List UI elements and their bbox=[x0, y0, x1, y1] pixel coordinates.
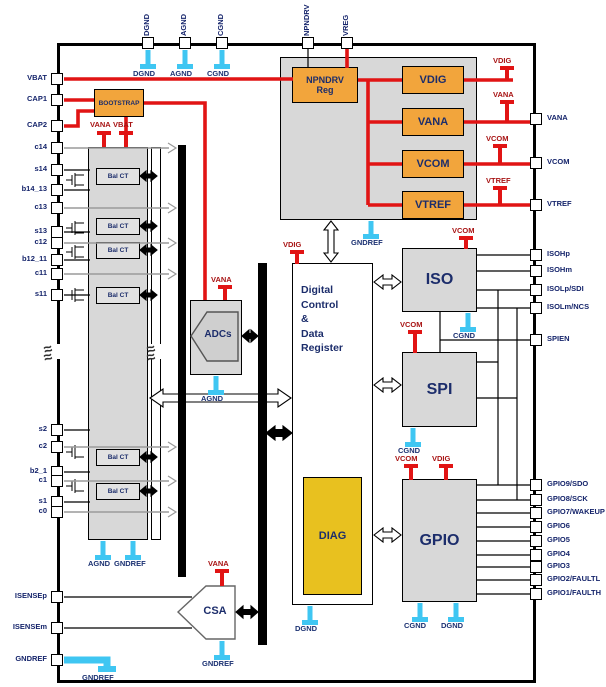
pin-label-VCOM: VCOM bbox=[547, 158, 570, 166]
supply-tap-stem bbox=[498, 146, 502, 164]
pin-label-b2_1: b2_1 bbox=[3, 467, 47, 475]
ground-label-GNDREF-13: GNDREF bbox=[82, 674, 114, 682]
pin-right-VCOM bbox=[530, 157, 542, 169]
pin-label-VANA: VANA bbox=[547, 114, 568, 122]
ground-label-CGND-2: CGND bbox=[207, 70, 229, 78]
csa-bus-arrow bbox=[236, 606, 258, 618]
supply-tap-stem bbox=[413, 332, 417, 353]
supply-tap-stem bbox=[444, 466, 448, 480]
ground-icon-bar bbox=[98, 666, 116, 672]
pin-label-GPIO5: GPIO5 bbox=[547, 536, 570, 544]
pin-label-c2: c2 bbox=[3, 442, 47, 450]
ground-label-AGND-1: AGND bbox=[170, 70, 192, 78]
supply-tap-stem bbox=[505, 68, 509, 80]
pin-right-GPIO5 bbox=[530, 535, 542, 547]
pin-label-c1: c1 bbox=[3, 476, 47, 484]
supply-label-VCOM-5: VCOM bbox=[400, 321, 423, 329]
pin-label-c13: c13 bbox=[3, 203, 47, 211]
pin-label-GPIO2/FAULTL: GPIO2/FAULTL bbox=[547, 575, 600, 583]
pin-left-s14 bbox=[51, 164, 63, 176]
cell-sense-wire-end bbox=[168, 143, 176, 153]
ground-icon-stem bbox=[146, 50, 151, 64]
pin-label-GPIO1/FAULTH: GPIO1/FAULTH bbox=[547, 589, 601, 597]
cell-sense-wire-end bbox=[168, 238, 176, 248]
pin-label-VBAT: VBAT bbox=[3, 74, 47, 82]
pin-top-NPNDRV bbox=[302, 37, 314, 49]
ground-icon-stem bbox=[418, 603, 423, 617]
pin-right-GPIO3 bbox=[530, 561, 542, 573]
ground-label-CGND-4: CGND bbox=[453, 332, 475, 340]
ground-icon-stem bbox=[308, 606, 313, 620]
balance-fet-symbol bbox=[66, 173, 84, 187]
pin-label-s11: s11 bbox=[3, 290, 47, 298]
ground-icon-stem bbox=[101, 541, 106, 555]
pin-right-ISOHp bbox=[530, 249, 542, 261]
pin-left-b14_13 bbox=[51, 184, 63, 196]
pin-label-ISENSEm: ISENSEm bbox=[3, 623, 47, 631]
pin-label-b12_11: b12_11 bbox=[3, 255, 47, 263]
pin-right-GPIO8/SCK bbox=[530, 494, 542, 506]
bus-arrow-digital-iso bbox=[374, 275, 401, 289]
pin-left-b12_11 bbox=[51, 254, 63, 266]
supply-label-VCOM-6: VCOM bbox=[395, 455, 418, 463]
ground-label-DGND-8: DGND bbox=[295, 625, 317, 633]
cell-sense-wire-end bbox=[168, 476, 176, 486]
pin-right-GPIO1/FAULTH bbox=[530, 588, 542, 600]
pin-left-ISENSEp bbox=[51, 591, 63, 603]
ground-icon-stem bbox=[183, 50, 188, 64]
pin-right-VANA bbox=[530, 113, 542, 125]
ground-icon-stem bbox=[454, 603, 459, 617]
pin-label-s2: s2 bbox=[3, 425, 47, 433]
adcs-label: ADCs bbox=[196, 329, 240, 340]
ground-label-CGND-6: CGND bbox=[404, 622, 426, 630]
pin-label-CAP2: CAP2 bbox=[3, 121, 47, 129]
supply-label-VTREF-12: VTREF bbox=[486, 177, 511, 185]
pin-label-NPNDRV: NPNDRV bbox=[303, 2, 311, 36]
csa-label: CSA bbox=[193, 605, 237, 617]
supply-label-VDIG-7: VDIG bbox=[432, 455, 450, 463]
pin-left-VBAT bbox=[51, 73, 63, 85]
cell-sense-wire-end bbox=[168, 203, 176, 213]
bus-arrow-digital-spi bbox=[374, 378, 401, 392]
pin-label-CGND: CGND bbox=[217, 2, 225, 36]
pin-label-GNDREF: GNDREF bbox=[3, 655, 47, 663]
pin-label-GPIO8/SCK: GPIO8/SCK bbox=[547, 495, 588, 503]
pin-label-ISOLm/NCS: ISOLm/NCS bbox=[547, 303, 589, 311]
pin-left-CAP2 bbox=[51, 120, 63, 132]
cell-sense-wire-end bbox=[168, 269, 176, 279]
pin-left-GNDREF bbox=[51, 654, 63, 666]
supply-tap-stem bbox=[295, 252, 299, 264]
pin-left-c13 bbox=[51, 202, 63, 214]
cell-sense-wire-end bbox=[168, 507, 176, 517]
pin-label-GPIO7/WAKEUP: GPIO7/WAKEUP bbox=[547, 508, 605, 516]
pin-label-GPIO6: GPIO6 bbox=[547, 522, 570, 530]
balct-bus-arrow bbox=[140, 290, 157, 300]
pin-top-VREG bbox=[341, 37, 353, 49]
supply-tap-stem bbox=[505, 102, 509, 122]
supply-tap-stem bbox=[220, 571, 224, 586]
balct-bus-arrow bbox=[140, 486, 157, 496]
ground-icon-stem bbox=[369, 221, 374, 234]
bus-arrow-digital-gpio bbox=[374, 528, 401, 542]
pin-right-ISOHm bbox=[530, 265, 542, 277]
pin-label-VREG: VREG bbox=[342, 2, 350, 36]
pin-label-VTREF: VTREF bbox=[547, 200, 572, 208]
ground-label-DGND-0: DGND bbox=[133, 70, 155, 78]
pin-top-CGND bbox=[216, 37, 228, 49]
pin-left-c1 bbox=[51, 475, 63, 487]
ground-icon-stem bbox=[466, 313, 471, 327]
pin-left-ISENSEm bbox=[51, 622, 63, 634]
gndref-wire bbox=[64, 660, 107, 666]
pin-label-SPIEN: SPIEN bbox=[547, 335, 570, 343]
pin-right-GPIO9/SDO bbox=[530, 479, 542, 491]
balct-bus-arrow bbox=[140, 221, 157, 231]
pin-label-b14_13: b14_13 bbox=[3, 185, 47, 193]
pin-label-GPIO4: GPIO4 bbox=[547, 550, 570, 558]
ground-label-CGND-5: CGND bbox=[398, 447, 420, 455]
pin-right-ISOLm/NCS bbox=[530, 302, 542, 314]
pin-right-GPIO2/FAULTL bbox=[530, 574, 542, 586]
supply-label-VANA-0: VANA bbox=[90, 121, 111, 129]
balance-fet-symbol bbox=[66, 245, 84, 259]
supply-label-VANA-2: VANA bbox=[211, 276, 232, 284]
supply-label-VDIG-9: VDIG bbox=[493, 57, 511, 65]
pin-left-c12 bbox=[51, 237, 63, 249]
balct-bus-arrow bbox=[140, 245, 157, 255]
ground-icon-stem bbox=[220, 641, 225, 655]
pin-label-c14: c14 bbox=[3, 143, 47, 151]
pin-left-c2 bbox=[51, 441, 63, 453]
pin-left-CAP1 bbox=[51, 94, 63, 106]
pin-label-ISOLp/SDI: ISOLp/SDI bbox=[547, 285, 584, 293]
ground-label-GNDREF-11: GNDREF bbox=[114, 560, 146, 568]
ground-icon-stem bbox=[411, 428, 416, 442]
supply-tap-stem bbox=[102, 133, 106, 147]
pin-right-GPIO6 bbox=[530, 521, 542, 533]
pin-right-VTREF bbox=[530, 199, 542, 211]
pin-label-s13: s13 bbox=[3, 227, 47, 235]
supply-label-VANA-10: VANA bbox=[493, 91, 514, 99]
pin-right-GPIO7/WAKEUP bbox=[530, 507, 542, 519]
wiring-layer bbox=[0, 0, 606, 687]
pin-top-DGND bbox=[142, 37, 154, 49]
pin-label-ISENSEp: ISENSEp bbox=[3, 592, 47, 600]
pin-label-c12: c12 bbox=[3, 238, 47, 246]
pin-left-s2 bbox=[51, 424, 63, 436]
adc-bus-arrow bbox=[242, 330, 258, 342]
supply-label-VDIG-3: VDIG bbox=[283, 241, 301, 249]
bus-bar-left bbox=[178, 145, 186, 577]
pin-label-GPIO9/SDO: GPIO9/SDO bbox=[547, 480, 588, 488]
balance-fet-symbol bbox=[66, 221, 84, 235]
pin-left-c14 bbox=[51, 142, 63, 154]
ground-label-AGND-9: AGND bbox=[201, 395, 223, 403]
pin-right-GPIO4 bbox=[530, 549, 542, 561]
supply-label-VBAT-1: VBAT bbox=[113, 121, 133, 129]
pin-label-s1: s1 bbox=[3, 497, 47, 505]
supply-wire bbox=[144, 103, 205, 300]
ground-label-GNDREF-12: GNDREF bbox=[202, 660, 234, 668]
pin-label-ISOHp: ISOHp bbox=[547, 250, 570, 258]
pin-label-DGND: DGND bbox=[143, 2, 151, 36]
bus-arrow-regulator-digital bbox=[324, 221, 338, 262]
pin-right-ISOLp/SDI bbox=[530, 284, 542, 296]
pin-label-CAP1: CAP1 bbox=[3, 95, 47, 103]
chip-block-diagram: NPNDRV Reg VDIG VANA VCOM VTREF BOOTSTRA… bbox=[0, 0, 606, 687]
bus-bar-center bbox=[258, 263, 267, 645]
cell-sense-wire-end bbox=[168, 442, 176, 452]
ground-label-AGND-10: AGND bbox=[88, 560, 110, 568]
supply-label-VANA-8: VANA bbox=[208, 560, 229, 568]
ground-label-GNDREF-3: GNDREF bbox=[351, 239, 383, 247]
supply-tap-stem bbox=[124, 133, 128, 147]
balct-bus-arrow bbox=[140, 452, 157, 462]
pin-label-AGND: AGND bbox=[180, 2, 188, 36]
ground-label-DGND-7: DGND bbox=[441, 622, 463, 630]
bus-digital-arrow bbox=[266, 426, 292, 440]
pin-label-c11: c11 bbox=[3, 269, 47, 277]
ground-icon-stem bbox=[214, 376, 219, 390]
pin-left-s11 bbox=[51, 289, 63, 301]
pin-right-SPIEN bbox=[530, 334, 542, 346]
supply-tap-stem bbox=[464, 238, 468, 249]
supply-tap-stem bbox=[223, 287, 227, 300]
supply-tap-stem bbox=[498, 188, 502, 205]
ground-icon-stem bbox=[131, 541, 136, 555]
supply-tap-stem bbox=[409, 466, 413, 480]
ground-icon-stem bbox=[220, 50, 225, 64]
pin-label-s14: s14 bbox=[3, 165, 47, 173]
pin-left-c0 bbox=[51, 506, 63, 518]
pin-label-GPIO3: GPIO3 bbox=[547, 562, 570, 570]
pin-label-c0: c0 bbox=[3, 507, 47, 515]
pin-label-ISOHm: ISOHm bbox=[547, 266, 572, 274]
balct-bus-arrow bbox=[140, 171, 157, 181]
pin-left-c11 bbox=[51, 268, 63, 280]
supply-label-VCOM-4: VCOM bbox=[452, 227, 475, 235]
pin-top-AGND bbox=[179, 37, 191, 49]
supply-label-VCOM-11: VCOM bbox=[486, 135, 509, 143]
